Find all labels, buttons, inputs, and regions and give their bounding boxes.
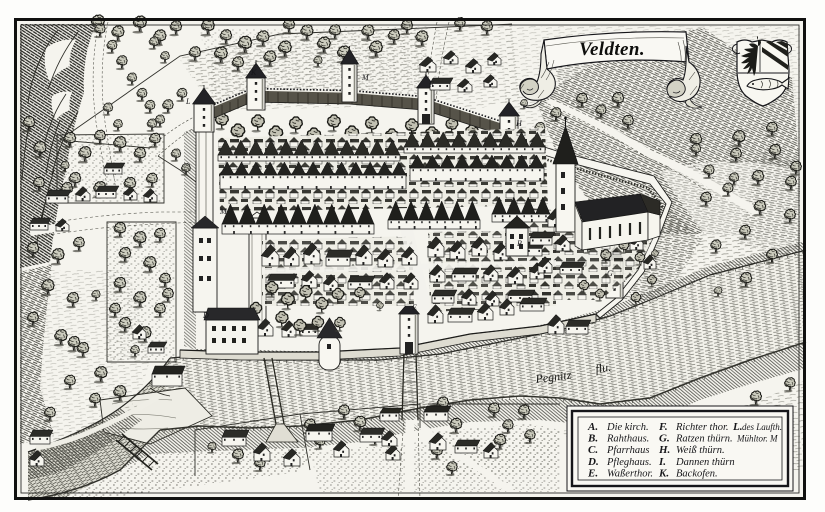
svg-text:G.: G. [659, 433, 670, 445]
svg-text:B.: B. [587, 433, 598, 445]
svg-text:des Laufth.: des Laufth. [742, 422, 782, 432]
svg-text:C.: C. [588, 444, 598, 456]
svg-text:Dannen thürn: Dannen thürn [675, 457, 735, 468]
svg-text:B: B [517, 239, 522, 248]
svg-text:L: L [185, 97, 191, 106]
svg-text:Weiß thürn.: Weiß thürn. [676, 445, 725, 456]
svg-text:A.: A. [587, 421, 598, 433]
svg-text:Die kirch.: Die kirch. [606, 422, 649, 433]
svg-text:D: D [202, 311, 209, 320]
svg-text:Pfarrhaus: Pfarrhaus [606, 445, 649, 456]
svg-text:G: G [607, 269, 613, 278]
svg-text:Richter thor.: Richter thor. [675, 422, 729, 433]
svg-text:Waßerthor.: Waßerthor. [607, 468, 653, 479]
svg-text:Ratzen thürn.: Ratzen thürn. [675, 434, 733, 445]
svg-text:E: E [411, 303, 417, 312]
svg-text:K.: K. [658, 467, 669, 479]
svg-text:F.: F. [658, 421, 668, 433]
svg-text:Mühltor. M: Mühltor. M [736, 434, 778, 444]
svg-text:I.: I. [658, 456, 666, 468]
svg-text:K: K [250, 68, 257, 77]
svg-text:M: M [219, 207, 228, 216]
svg-text:Backofen.: Backofen. [676, 468, 718, 479]
svg-text:E.: E. [587, 467, 598, 479]
svg-text:L.: L. [732, 421, 742, 433]
svg-text:H.: H. [658, 444, 670, 456]
svg-text:Veldten.: Veldten. [579, 39, 645, 60]
svg-text:Pfleghaus.: Pfleghaus. [606, 457, 652, 468]
svg-text:Rahthaus.: Rahthaus. [606, 434, 649, 445]
svg-text:M: M [361, 73, 370, 82]
svg-text:flu.: flu. [594, 360, 612, 376]
svg-text:D.: D. [587, 456, 599, 468]
svg-text:F: F [428, 80, 434, 89]
